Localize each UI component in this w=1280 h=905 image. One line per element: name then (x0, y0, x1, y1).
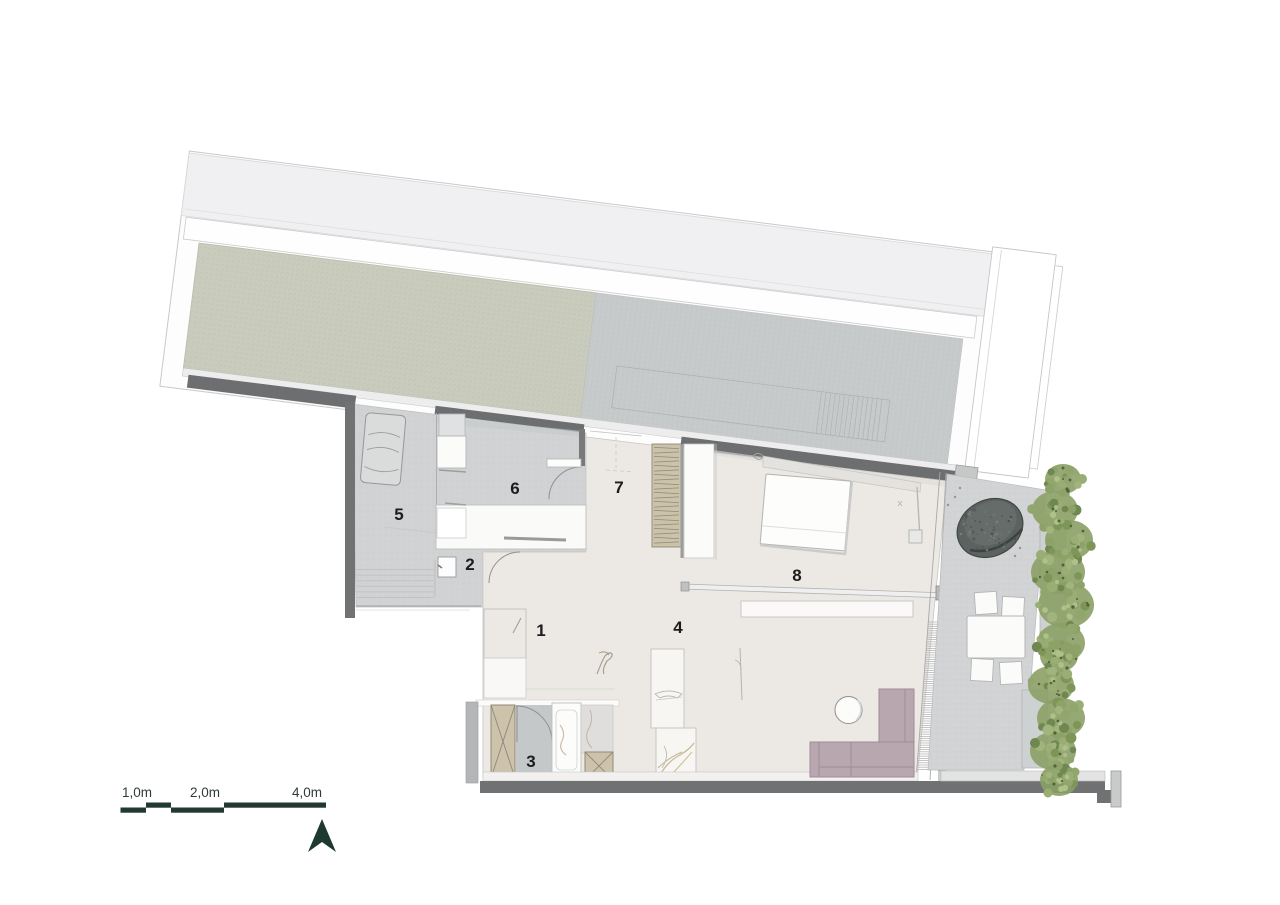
svg-text:6: 6 (510, 479, 519, 498)
svg-text:1,0m: 1,0m (122, 785, 152, 800)
svg-text:4: 4 (673, 618, 683, 637)
svg-text:1: 1 (536, 621, 545, 640)
svg-text:5: 5 (394, 505, 403, 524)
svg-text:4,0m: 4,0m (292, 785, 322, 800)
svg-text:8: 8 (792, 566, 801, 585)
svg-text:3: 3 (526, 752, 535, 771)
svg-text:2,0m: 2,0m (190, 785, 220, 800)
svg-text:7: 7 (614, 478, 623, 497)
svg-text:2: 2 (465, 555, 474, 574)
